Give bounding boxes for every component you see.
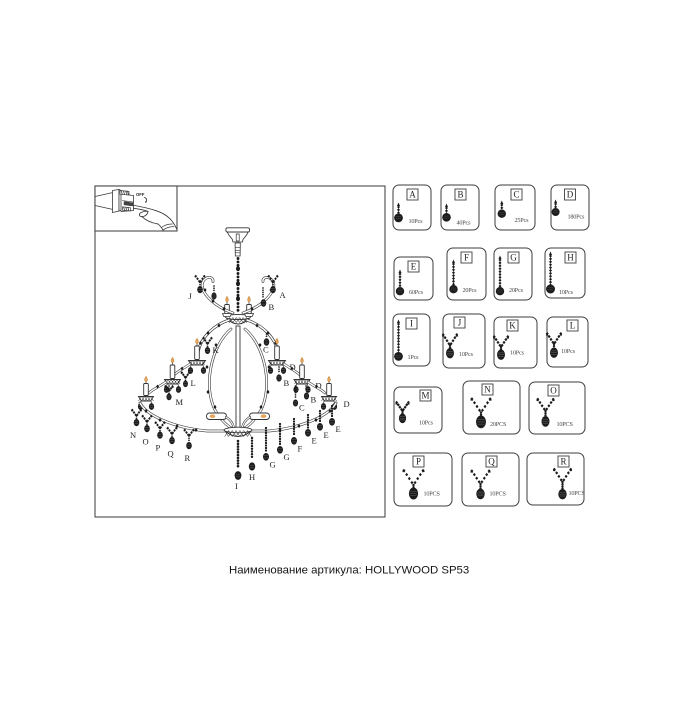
- svg-text:N: N: [130, 430, 136, 440]
- svg-text:I: I: [235, 481, 238, 491]
- svg-text:A: A: [280, 290, 287, 300]
- svg-text:10Pcs: 10Pcs: [510, 350, 525, 357]
- svg-text:Q: Q: [168, 449, 174, 459]
- svg-text:H: H: [567, 252, 574, 262]
- svg-text:I: I: [410, 318, 413, 328]
- svg-text:G: G: [284, 452, 290, 462]
- svg-text:B: B: [284, 378, 290, 388]
- svg-text:O: O: [550, 385, 557, 395]
- svg-text:P: P: [156, 443, 161, 453]
- svg-text:P: P: [416, 456, 421, 466]
- svg-text:A: A: [409, 189, 416, 199]
- svg-text:R: R: [560, 456, 566, 466]
- svg-text:C: C: [513, 189, 519, 199]
- svg-text:OFF: OFF: [136, 192, 145, 197]
- svg-text:M: M: [421, 390, 429, 400]
- svg-text:20PCS: 20PCS: [490, 421, 507, 428]
- svg-text:10PCS: 10PCS: [424, 491, 441, 498]
- svg-text:10PCS: 10PCS: [557, 421, 574, 428]
- svg-text:Q: Q: [488, 456, 495, 466]
- svg-text:10Pcs: 10Pcs: [559, 289, 574, 296]
- svg-text:1Pcs: 1Pcs: [408, 354, 420, 361]
- svg-text:D: D: [344, 399, 350, 409]
- svg-text:B: B: [269, 302, 275, 312]
- svg-text:G: G: [510, 252, 517, 262]
- svg-text:L: L: [191, 378, 196, 388]
- svg-text:180Pcs: 180Pcs: [568, 214, 585, 221]
- svg-text:F: F: [298, 444, 303, 454]
- svg-text:K: K: [509, 320, 516, 330]
- svg-text:L: L: [570, 320, 576, 330]
- svg-text:25Pcs: 25Pcs: [515, 217, 530, 224]
- svg-text:10Pcs: 10Pcs: [459, 351, 474, 358]
- svg-text:R: R: [185, 453, 191, 463]
- svg-text:F: F: [464, 252, 469, 262]
- svg-text:10PCS: 10PCS: [490, 491, 507, 498]
- svg-text:E: E: [324, 430, 329, 440]
- svg-text:H: H: [249, 472, 255, 482]
- svg-text:M: M: [176, 397, 184, 407]
- svg-text:10PCS: 10PCS: [569, 490, 586, 497]
- svg-text:G: G: [270, 460, 276, 470]
- svg-text:E: E: [411, 261, 417, 271]
- svg-text:60Pcs: 60Pcs: [409, 289, 424, 296]
- svg-text:J: J: [458, 317, 462, 327]
- svg-text:N: N: [484, 384, 491, 394]
- svg-text:Наименование артикула: HOLLYWO: Наименование артикула: HOLLYWOOD SP53: [229, 565, 469, 577]
- svg-text:E: E: [336, 424, 341, 434]
- svg-text:20Pcs: 20Pcs: [509, 287, 524, 294]
- svg-text:D: D: [567, 189, 574, 199]
- svg-text:40Pcs: 40Pcs: [457, 220, 472, 227]
- svg-text:10Pcs: 10Pcs: [419, 420, 434, 427]
- svg-text:C: C: [263, 345, 269, 355]
- svg-text:C: C: [299, 403, 305, 413]
- svg-text:20Pcs: 20Pcs: [463, 287, 478, 294]
- svg-text:B: B: [311, 395, 317, 405]
- svg-text:K: K: [213, 345, 220, 355]
- svg-text:E: E: [312, 436, 317, 446]
- svg-text:10Pcs: 10Pcs: [561, 348, 576, 355]
- svg-text:O: O: [143, 437, 149, 447]
- svg-text:10Pcs: 10Pcs: [409, 218, 424, 225]
- svg-text:B: B: [457, 189, 463, 199]
